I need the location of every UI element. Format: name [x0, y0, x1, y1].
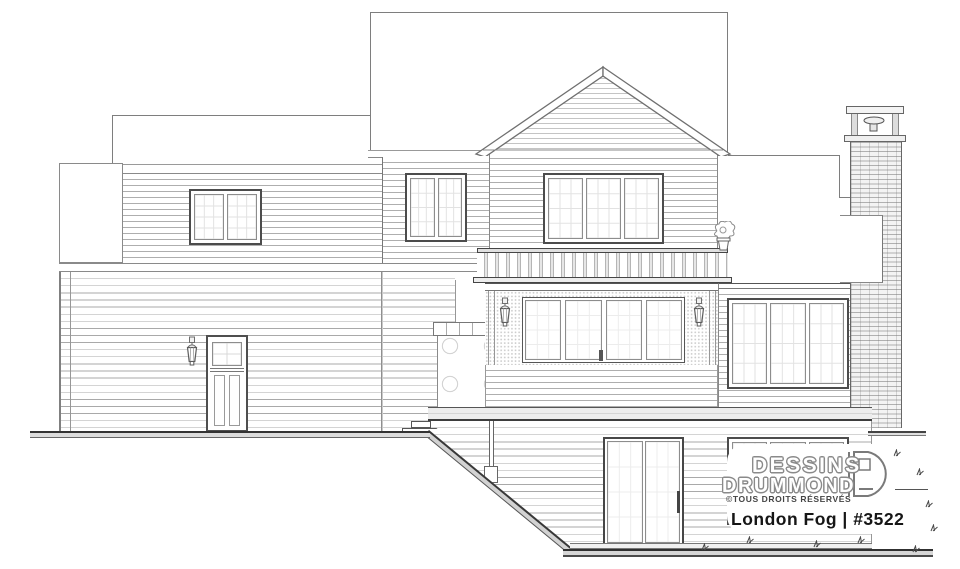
main-block-corner-line	[381, 272, 383, 432]
chimney-brick	[850, 142, 902, 428]
window-sash	[624, 178, 659, 239]
second-floor-band	[59, 263, 479, 272]
window-sash	[586, 178, 621, 239]
patio-door-panel	[645, 441, 681, 543]
grade-line-left	[30, 431, 430, 438]
plan-title: London Fog | #3522	[731, 511, 904, 529]
second-floor-window-left-double	[189, 189, 262, 245]
porch-header	[485, 283, 718, 291]
wall-lantern-icon	[185, 336, 199, 368]
chimney-shoulder	[844, 135, 906, 142]
brand-name-line2: DRUMMOND	[722, 476, 855, 496]
wall-lantern-icon	[692, 294, 706, 332]
balcony-bottom-rail	[473, 277, 732, 283]
door-panel	[214, 375, 225, 426]
deck-band	[428, 407, 872, 421]
stone-pillar-cap	[433, 322, 490, 336]
patio-door-panel	[607, 441, 643, 543]
window-sash	[227, 194, 257, 240]
chimney-flue-icon	[862, 116, 886, 133]
grass-tuft-icon	[893, 449, 902, 457]
door-window	[212, 342, 242, 366]
window-sash	[194, 194, 224, 240]
grade-line-right-upper	[868, 431, 926, 436]
wall-lantern-icon	[498, 294, 512, 332]
grass-tuft-icon	[912, 545, 921, 553]
grass-tuft-icon	[701, 543, 710, 551]
grass-tuft-icon	[857, 536, 866, 544]
porch-lower-siding	[485, 365, 718, 407]
left-corner-board	[70, 272, 71, 432]
sliding-panel	[525, 300, 561, 360]
elevation-drawing: DESSINS DRUMMOND ©TOUS DROITS RÉSERVÉS L…	[0, 0, 960, 569]
porch-sliding-panels	[522, 297, 685, 363]
deck-step	[411, 421, 431, 428]
porch-post-edge	[455, 280, 456, 322]
left-wing-roof	[112, 115, 370, 165]
grass-tuft-icon	[813, 540, 822, 548]
sliding-panel	[606, 300, 642, 360]
grass-tuft-icon	[925, 500, 934, 508]
window-sash	[770, 303, 805, 384]
right-roofline	[728, 155, 840, 157]
balcony-balusters	[477, 253, 728, 277]
rights-notice: ©TOUS DROITS RÉSERVÉS	[726, 495, 851, 504]
door-midrail	[210, 368, 244, 372]
gable-roof	[460, 54, 740, 156]
grass-tuft-icon	[746, 536, 755, 544]
window-sash	[809, 303, 844, 384]
left-wing-fascia	[107, 164, 384, 174]
back-door	[206, 335, 248, 432]
sliding-panel	[565, 300, 601, 360]
grade-line-bottom	[563, 549, 933, 557]
chimney-cap-slab	[846, 106, 904, 114]
grass-tuft-icon	[916, 468, 925, 476]
right-roof-edge	[839, 156, 841, 198]
window-sash	[732, 303, 767, 384]
second-floor-window-gable-triple	[543, 173, 664, 244]
panel-handle	[599, 350, 603, 361]
second-floor-window-center-double	[405, 173, 467, 242]
patio-door-handle	[677, 491, 680, 513]
flower-pot-icon	[711, 221, 737, 251]
grass-tuft-icon	[930, 524, 939, 532]
window-sash	[438, 178, 463, 237]
stone-pillar	[437, 336, 486, 410]
deck-post	[489, 421, 494, 467]
basement-patio-door	[603, 437, 684, 547]
door-panel	[229, 375, 240, 426]
window-sash	[548, 178, 583, 239]
brand-name-line1: DESSINS	[752, 455, 862, 476]
window-sash	[410, 178, 435, 237]
first-floor-window-right-triple	[727, 298, 849, 389]
wall-step-over-chimney	[840, 215, 883, 283]
first-floor-left-wall	[59, 272, 455, 432]
sliding-panel	[646, 300, 682, 360]
left-corner-wall	[59, 163, 123, 263]
